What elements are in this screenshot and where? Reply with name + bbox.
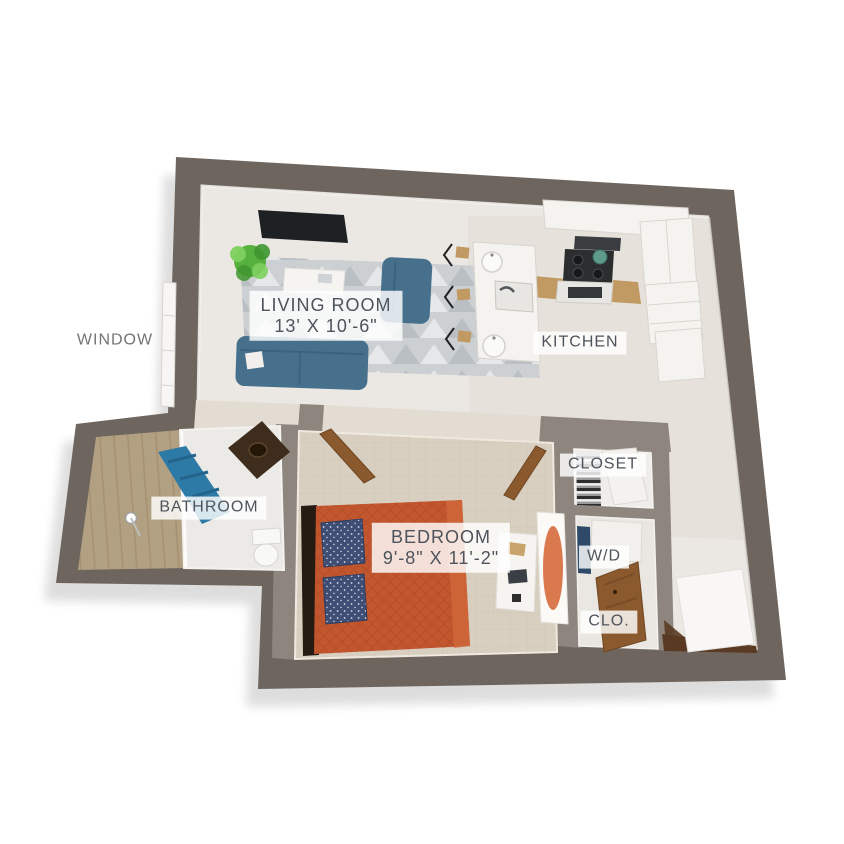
label-bedroom: BEDROOM 9'-8" X 11'-2" — [372, 523, 510, 573]
sofa-pillow — [245, 351, 264, 369]
room-name: KITCHEN — [541, 334, 618, 351]
counter-right — [612, 280, 641, 304]
room-name: CLO. — [588, 613, 629, 630]
toilet-tank — [252, 528, 281, 545]
room-dims: 13' X 10'-6" — [260, 316, 391, 337]
room-name: BATHROOM — [159, 499, 258, 516]
label-clo: CLO. — [580, 611, 637, 634]
floorplan-render — [0, 0, 844, 844]
round-sink-faucet — [490, 253, 493, 256]
burner — [573, 268, 583, 278]
room-dims: 9'-8" X 11'-2" — [383, 548, 499, 569]
room-name: BEDROOM — [383, 527, 499, 548]
door-knob — [613, 590, 617, 594]
desk-laptop — [508, 569, 528, 584]
desk-item — [512, 594, 521, 602]
window-label-text: WINDOW — [77, 332, 153, 349]
floorplan-canvas: WINDOW LIVING ROOM 13' X 10'-6" KITCHEN … — [0, 0, 844, 844]
burner — [573, 255, 583, 265]
round-sink-faucet — [492, 336, 495, 339]
label-bathroom: BATHROOM — [151, 497, 266, 520]
oven-window — [568, 287, 602, 298]
label-living-room: LIVING ROOM 13' X 10'-6" — [249, 291, 402, 341]
tv — [258, 210, 348, 243]
burner — [593, 269, 603, 279]
art-orange — [543, 526, 563, 610]
label-window: WINDOW — [77, 332, 153, 351]
microwave — [574, 236, 621, 251]
label-closet: CLOSET — [560, 454, 646, 477]
room-name: W/D — [587, 548, 621, 565]
entry-door — [676, 569, 754, 652]
sofa — [235, 336, 369, 391]
island-sink — [495, 281, 533, 312]
clo-door — [596, 562, 646, 652]
vanity-sink — [249, 443, 267, 457]
room-name: CLOSET — [568, 456, 638, 473]
toilet-bowl — [254, 544, 278, 566]
bed-pillow — [323, 574, 367, 624]
label-washer-dryer: W/D — [579, 546, 629, 569]
room-name: LIVING ROOM — [260, 295, 391, 316]
bathroom — [78, 421, 290, 570]
window — [161, 282, 176, 407]
base-cabinet — [655, 328, 705, 382]
pot — [593, 250, 607, 264]
bed-pillow — [321, 519, 365, 567]
label-kitchen: KITCHEN — [533, 332, 626, 355]
